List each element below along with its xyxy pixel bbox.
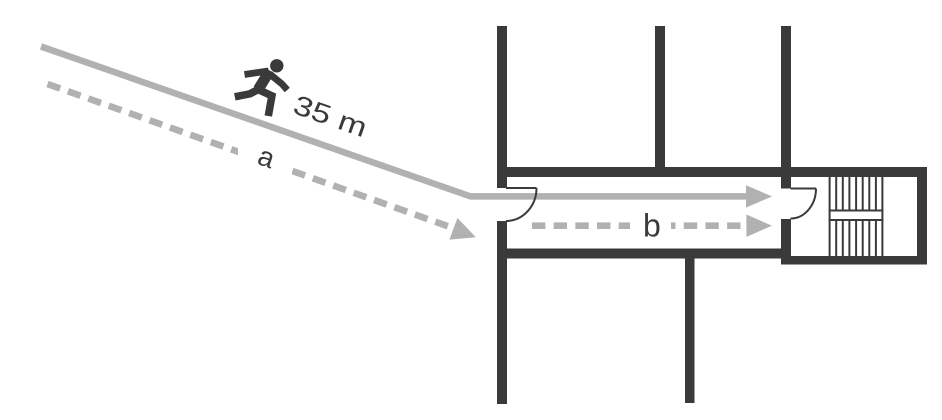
svg-text:b: b xyxy=(643,208,661,244)
